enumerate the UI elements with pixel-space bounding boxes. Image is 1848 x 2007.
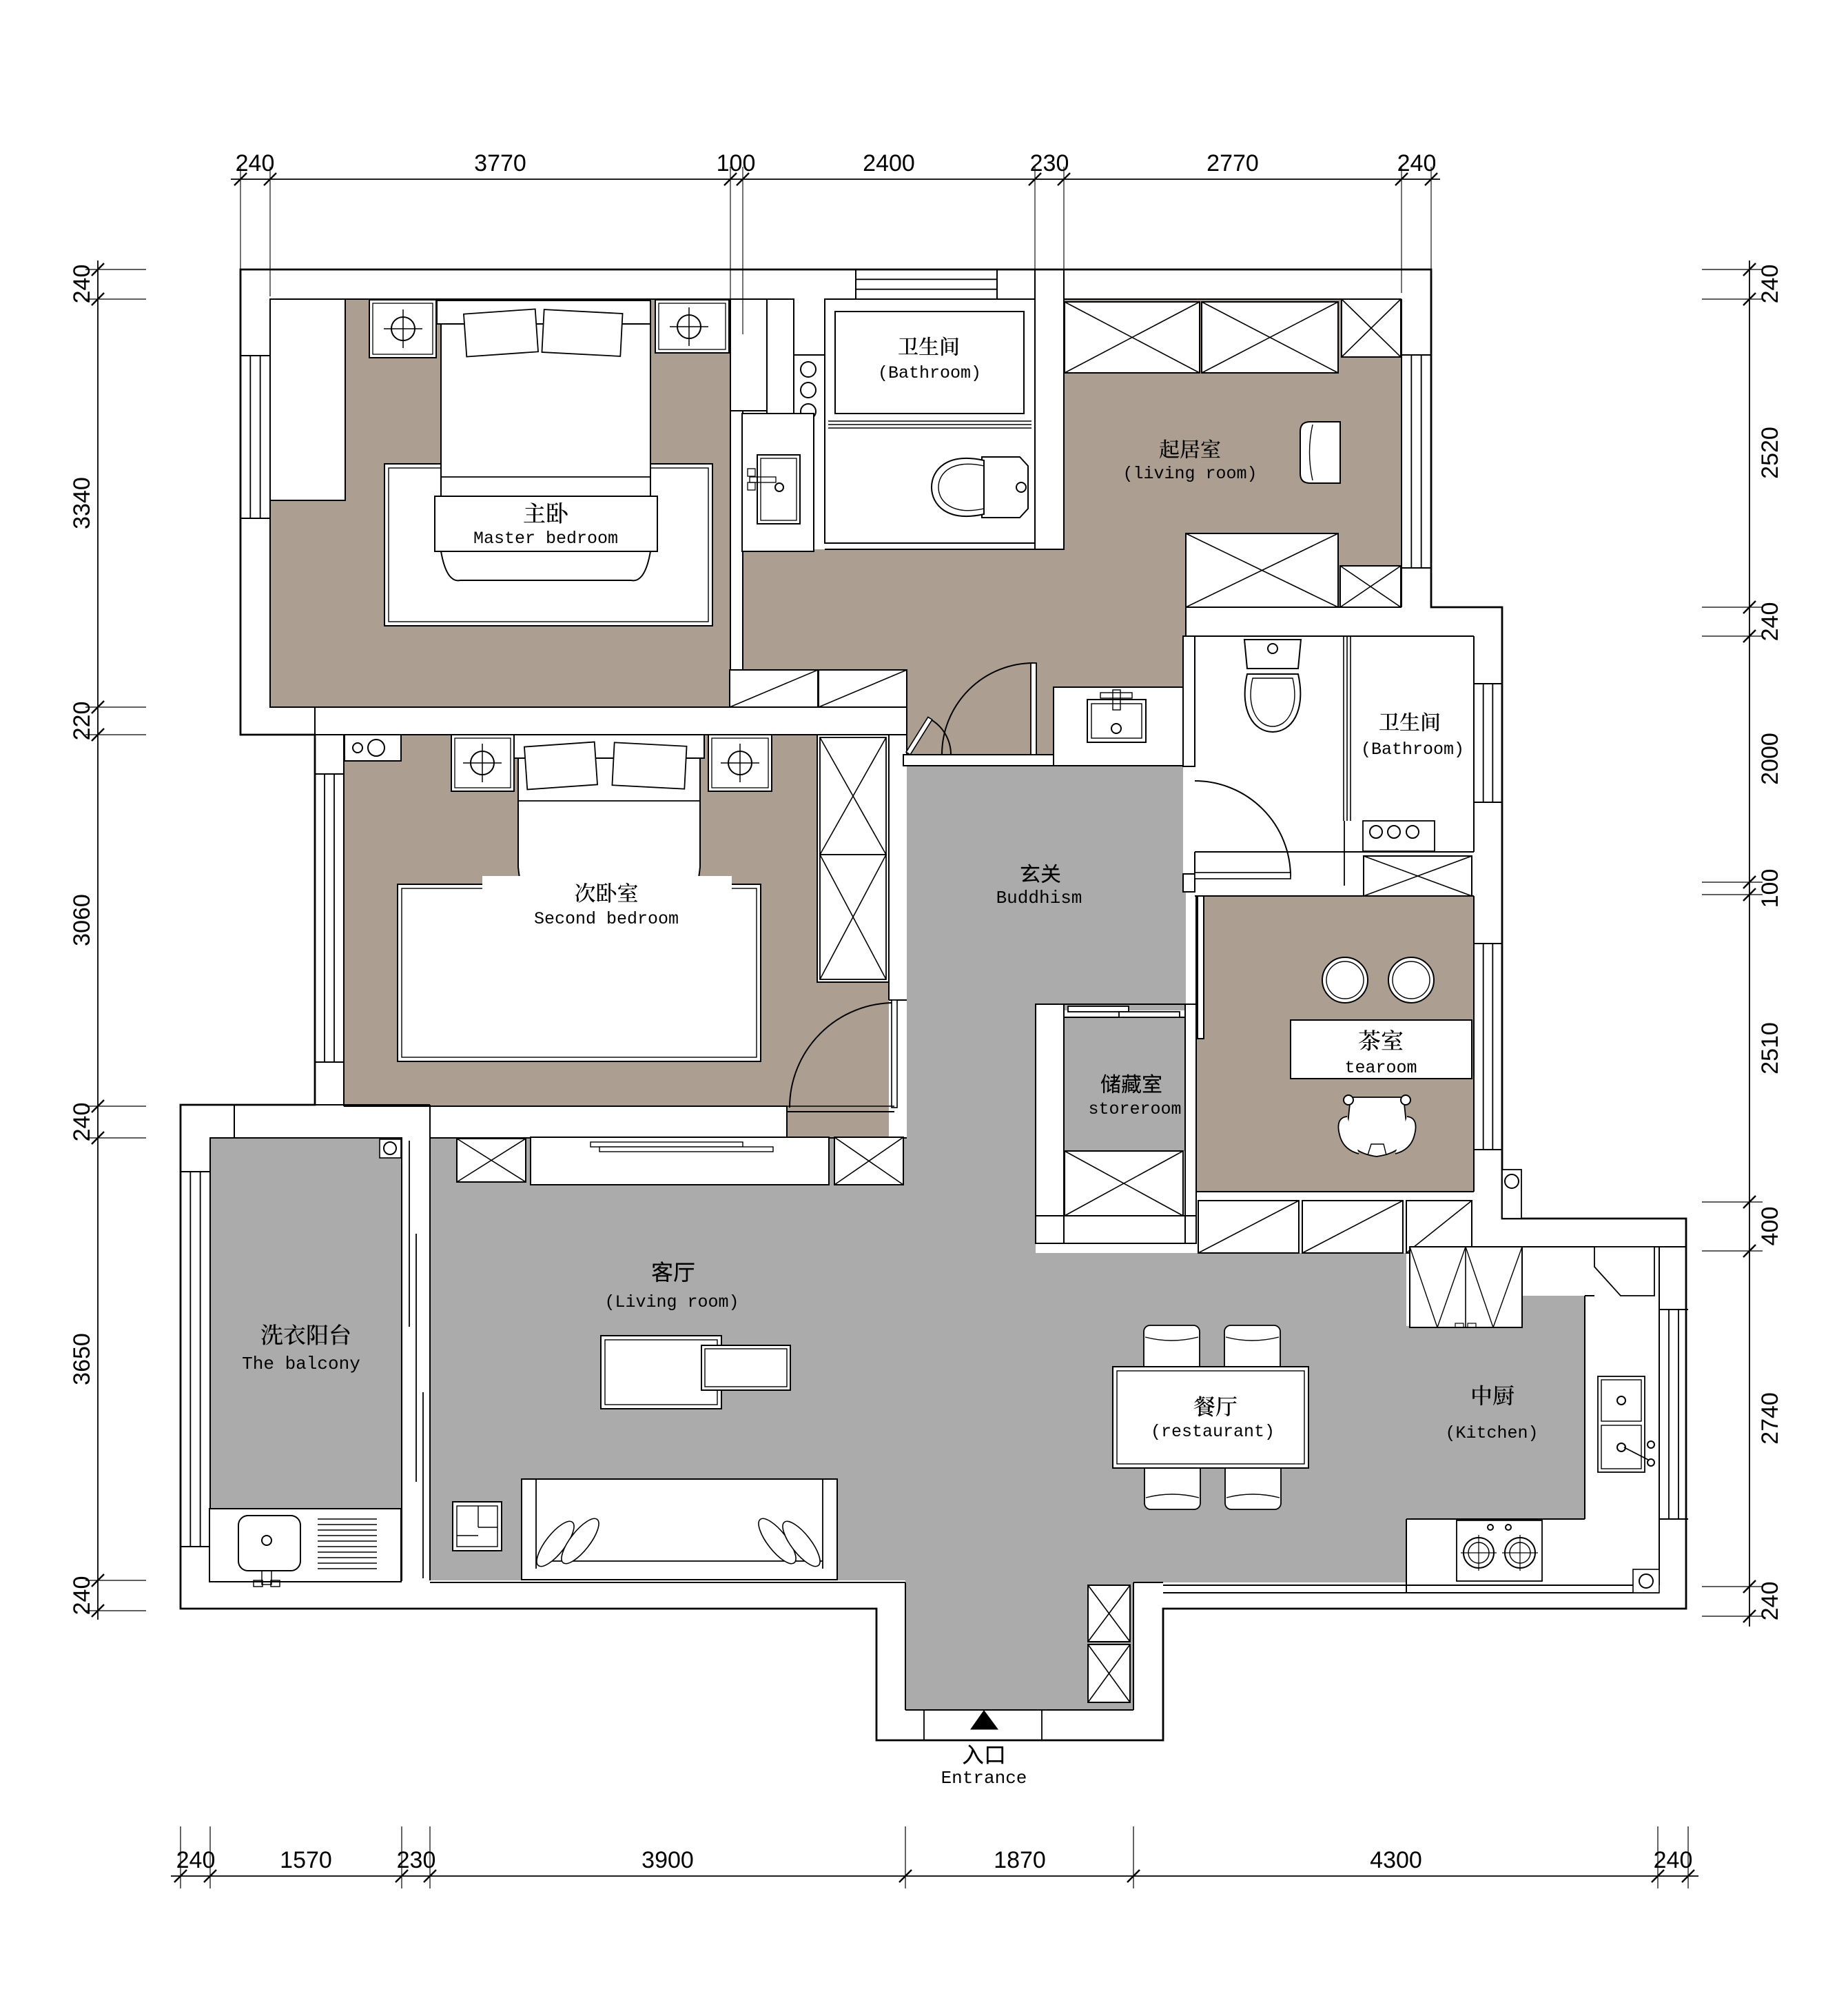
svg-text:240: 240 — [69, 1103, 95, 1142]
svg-text:1570: 1570 — [280, 1847, 332, 1873]
svg-text:240: 240 — [1757, 1582, 1783, 1621]
svg-text:220: 220 — [69, 702, 95, 741]
svg-text:1870: 1870 — [994, 1847, 1046, 1873]
svg-text:3900: 3900 — [641, 1847, 694, 1873]
svg-text:2000: 2000 — [1757, 733, 1783, 785]
svg-text:2740: 2740 — [1757, 1392, 1783, 1445]
svg-text:240: 240 — [176, 1847, 216, 1873]
svg-text:2520: 2520 — [1757, 427, 1783, 479]
svg-text:3340: 3340 — [69, 477, 95, 529]
svg-text:240: 240 — [1757, 602, 1783, 642]
svg-text:Second bedroom: Second bedroom — [534, 909, 679, 929]
svg-text:100: 100 — [1757, 869, 1783, 908]
svg-text:240: 240 — [1654, 1847, 1693, 1873]
svg-text:The balcony: The balcony — [242, 1354, 360, 1374]
svg-text:2510: 2510 — [1757, 1022, 1783, 1074]
svg-text:Master bedroom: Master bedroom — [473, 529, 618, 549]
svg-text:240: 240 — [69, 1576, 95, 1616]
svg-text:(Bathroom): (Bathroom) — [878, 363, 981, 383]
svg-text:(Living room): (Living room) — [604, 1292, 739, 1312]
svg-text:tearoom: tearoom — [1344, 1058, 1417, 1078]
svg-text:2770: 2770 — [1207, 150, 1259, 176]
svg-text:3650: 3650 — [69, 1333, 95, 1385]
svg-text:100: 100 — [717, 150, 756, 176]
svg-text:240: 240 — [1757, 265, 1783, 304]
svg-text:3770: 3770 — [474, 150, 526, 176]
svg-text:(Kitchen): (Kitchen) — [1445, 1423, 1538, 1443]
svg-text:230: 230 — [397, 1847, 436, 1873]
svg-text:2400: 2400 — [863, 150, 915, 176]
svg-text:240: 240 — [236, 150, 275, 176]
svg-text:(living room): (living room) — [1122, 464, 1257, 484]
svg-text:400: 400 — [1757, 1207, 1783, 1246]
svg-text:(restaurant): (restaurant) — [1151, 1422, 1275, 1442]
svg-text:3060: 3060 — [69, 894, 95, 946]
svg-text:(Bathroom): (Bathroom) — [1361, 740, 1464, 760]
svg-text:230: 230 — [1030, 150, 1069, 176]
svg-text:4300: 4300 — [1370, 1847, 1422, 1873]
svg-text:Buddhism: Buddhism — [996, 888, 1082, 908]
svg-text:240: 240 — [69, 265, 95, 304]
svg-text:storeroom: storeroom — [1088, 1099, 1181, 1119]
svg-text:240: 240 — [1397, 150, 1437, 176]
svg-text:Entrance: Entrance — [941, 1768, 1027, 1789]
